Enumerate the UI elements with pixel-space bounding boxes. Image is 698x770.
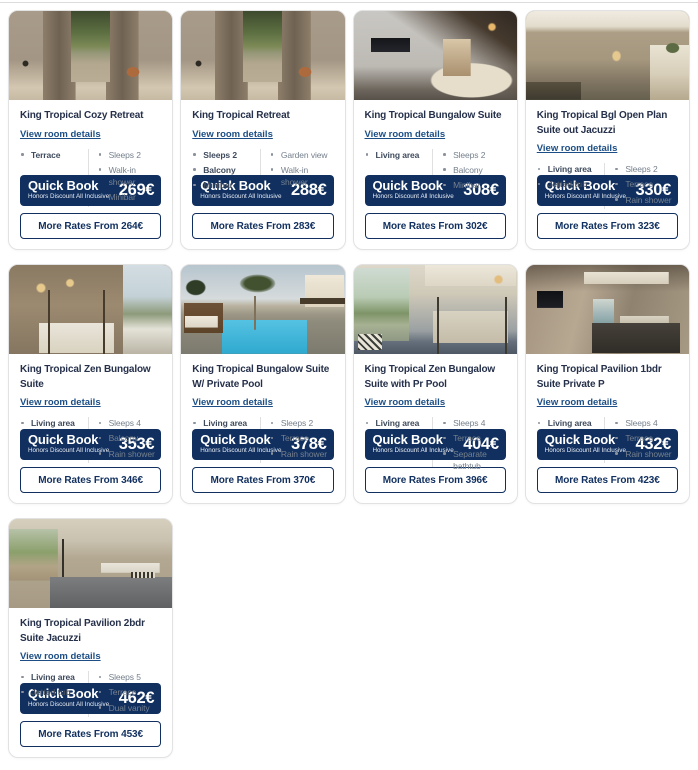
- feature-item: Terrace: [442, 432, 506, 444]
- room-card: King Tropical Retreat View room details …: [180, 10, 345, 250]
- view-room-details-link[interactable]: View room details: [20, 397, 101, 408]
- room-features: Sleeps 2BalconyMinibar Garden viewWalk-i…: [192, 149, 333, 176]
- view-room-details-link[interactable]: View room details: [20, 129, 101, 140]
- room-title: King Tropical Zen Bungalow Suite with Pr…: [365, 363, 506, 392]
- room-title: King Tropical Zen Bungalow Suite: [20, 363, 161, 392]
- feature-item: Minibar: [442, 179, 506, 191]
- feature-item: Sleeps 2: [442, 149, 506, 161]
- room-card: King Tropical Cozy Retreat View room det…: [8, 10, 173, 250]
- room-card-body: King Tropical Pavilion 1bdr Suite Privat…: [526, 354, 689, 503]
- room-features-right: Sleeps 4BalconyRain shower: [88, 417, 162, 463]
- feature-item: Sleeps 4: [614, 417, 678, 429]
- feature-item: Sleeps 2: [98, 149, 162, 161]
- feature-item: Walk-in shower: [98, 164, 162, 189]
- feature-item: Rain shower: [98, 448, 162, 460]
- feature-item: Jetted tub: [537, 178, 601, 190]
- room-photo: [354, 265, 517, 354]
- room-results-page: King Tropical Cozy Retreat View room det…: [0, 2, 698, 768]
- feature-item: Living area: [192, 417, 256, 429]
- feature-item: Sleeps 4: [442, 417, 506, 429]
- feature-item: Dual vanity: [98, 702, 162, 714]
- room-features: Terrace Sleeps 2Walk-in showerMinibar: [20, 149, 161, 176]
- room-features-right: Sleeps 5TerraceDual vanity: [88, 671, 162, 717]
- view-room-details-link[interactable]: View room details: [192, 397, 273, 408]
- room-features-right: Sleeps 2TerraceRain shower: [260, 417, 334, 463]
- feature-item: Rain shower: [614, 448, 678, 460]
- room-title: King Tropical Cozy Retreat: [20, 109, 161, 124]
- view-room-details-link[interactable]: View room details: [537, 397, 618, 408]
- room-features-right: Sleeps 4TerraceRain shower: [604, 417, 678, 463]
- quick-book-subtitle: Honors Discount All Inclusive: [200, 193, 281, 201]
- room-photo: [9, 519, 172, 608]
- more-rates-button[interactable]: More Rates From 264€: [20, 213, 161, 239]
- more-rates-button[interactable]: More Rates From 323€: [537, 213, 678, 239]
- more-rates-button[interactable]: More Rates From 370€: [192, 467, 333, 493]
- feature-item: Sleeps 2: [192, 149, 256, 161]
- more-rates-button[interactable]: More Rates From 423€: [537, 467, 678, 493]
- view-room-details-link[interactable]: View room details: [537, 143, 618, 154]
- feature-item: Garden view: [270, 149, 334, 161]
- feature-item: Living area: [365, 149, 429, 161]
- view-room-details-link[interactable]: View room details: [365, 397, 446, 408]
- room-card: King Tropical Pavilion 1bdr Suite Privat…: [525, 264, 690, 504]
- room-photo: [526, 11, 689, 100]
- room-card-body: King Tropical Cozy Retreat View room det…: [9, 100, 172, 249]
- room-photo: [181, 265, 344, 354]
- room-features-left: Sleeps 2BalconyMinibar: [192, 149, 260, 195]
- feature-item: Sleeps 2: [270, 417, 334, 429]
- feature-item: Terrace: [614, 432, 678, 444]
- feature-item: Balcony: [98, 432, 162, 444]
- more-rates-button[interactable]: More Rates From 453€: [20, 721, 161, 747]
- feature-item: Terrace: [98, 686, 162, 698]
- view-room-details-link[interactable]: View room details: [365, 129, 446, 140]
- room-features-right: Sleeps 2Walk-in showerMinibar: [88, 149, 162, 207]
- room-card: King Tropical Zen Bungalow Suite View ro…: [8, 264, 173, 504]
- feature-item: Rain shower: [614, 194, 678, 206]
- room-features: Living area Sleeps 4TerraceRain shower: [537, 417, 678, 429]
- room-features: Living area Sleeps 2TerraceRain shower: [192, 417, 333, 429]
- feature-item: Separate bathtub: [442, 448, 506, 473]
- room-title: King Tropical Pavilion 1bdr Suite Privat…: [537, 363, 678, 392]
- room-card: King Tropical Bungalow Suite W/ Private …: [180, 264, 345, 504]
- room-card-body: King Tropical Bgl Open Plan Suite out Ja…: [526, 100, 689, 249]
- room-card: King Tropical Bungalow Suite View room d…: [353, 10, 518, 250]
- room-features-right: Sleeps 2TerraceRain shower: [604, 163, 678, 209]
- more-rates-button[interactable]: More Rates From 346€: [20, 467, 161, 493]
- quick-book-subtitle: Honors Discount All Inclusive: [373, 193, 454, 201]
- room-card-body: King Tropical Pavilion 2bdr Suite Jacuzz…: [9, 608, 172, 757]
- room-features: Living areaJetted tub Sleeps 2TerraceRai…: [537, 163, 678, 175]
- feature-item: Minibar: [192, 179, 256, 191]
- feature-item: Balcony: [442, 164, 506, 176]
- feature-item: Minibar: [98, 191, 162, 203]
- room-title: King Tropical Bungalow Suite W/ Private …: [192, 363, 333, 392]
- more-rates-button[interactable]: More Rates From 302€: [365, 213, 506, 239]
- room-features: Living area Sleeps 2BalconyMinibar: [365, 149, 506, 176]
- feature-item: Jetted tub: [20, 686, 84, 698]
- room-features-right: Garden viewWalk-in shower: [260, 149, 334, 195]
- feature-item: Terrace: [20, 149, 84, 161]
- room-title: King Tropical Bungalow Suite: [365, 109, 506, 124]
- room-card: King Tropical Zen Bungalow Suite with Pr…: [353, 264, 518, 504]
- feature-item: Balcony: [192, 164, 256, 176]
- feature-item: Rain shower: [270, 448, 334, 460]
- room-grid: King Tropical Cozy Retreat View room det…: [0, 3, 698, 768]
- room-card-body: King Tropical Zen Bungalow Suite with Pr…: [354, 354, 517, 503]
- feature-item: Living area: [537, 163, 601, 175]
- room-features: Living area Sleeps 4TerraceSeparate bath…: [365, 417, 506, 429]
- feature-item: Living area: [537, 417, 601, 429]
- room-card: King Tropical Pavilion 2bdr Suite Jacuzz…: [8, 518, 173, 758]
- room-title: King Tropical Bgl Open Plan Suite out Ja…: [537, 109, 678, 138]
- feature-item: Terrace: [614, 178, 678, 190]
- room-card-body: King Tropical Zen Bungalow Suite View ro…: [9, 354, 172, 503]
- feature-item: Living area: [20, 671, 84, 683]
- more-rates-button[interactable]: More Rates From 283€: [192, 213, 333, 239]
- room-card-body: King Tropical Bungalow Suite W/ Private …: [181, 354, 344, 503]
- room-card-body: King Tropical Bungalow Suite View room d…: [354, 100, 517, 249]
- room-photo: [354, 11, 517, 100]
- room-features-right: Sleeps 2BalconyMinibar: [432, 149, 506, 195]
- feature-item: Sleeps 4: [98, 417, 162, 429]
- room-features: Living area Sleeps 4BalconyRain shower: [20, 417, 161, 429]
- feature-item: Living area: [20, 417, 84, 429]
- feature-item: Living area: [365, 417, 429, 429]
- view-room-details-link[interactable]: View room details: [20, 651, 101, 662]
- room-title: King Tropical Retreat: [192, 109, 333, 124]
- room-title: King Tropical Pavilion 2bdr Suite Jacuzz…: [20, 617, 161, 646]
- feature-item: Sleeps 5: [98, 671, 162, 683]
- feature-item: Walk-in shower: [270, 164, 334, 189]
- room-photo: [9, 11, 172, 100]
- feature-item: Sleeps 2: [614, 163, 678, 175]
- view-room-details-link[interactable]: View room details: [192, 129, 273, 140]
- room-photo: [181, 11, 344, 100]
- room-photo: [526, 265, 689, 354]
- room-photo: [9, 265, 172, 354]
- feature-item: Terrace: [270, 432, 334, 444]
- room-features: Living areaJetted tub Sleeps 5TerraceDua…: [20, 671, 161, 683]
- room-card: King Tropical Bgl Open Plan Suite out Ja…: [525, 10, 690, 250]
- room-card-body: King Tropical Retreat View room details …: [181, 100, 344, 249]
